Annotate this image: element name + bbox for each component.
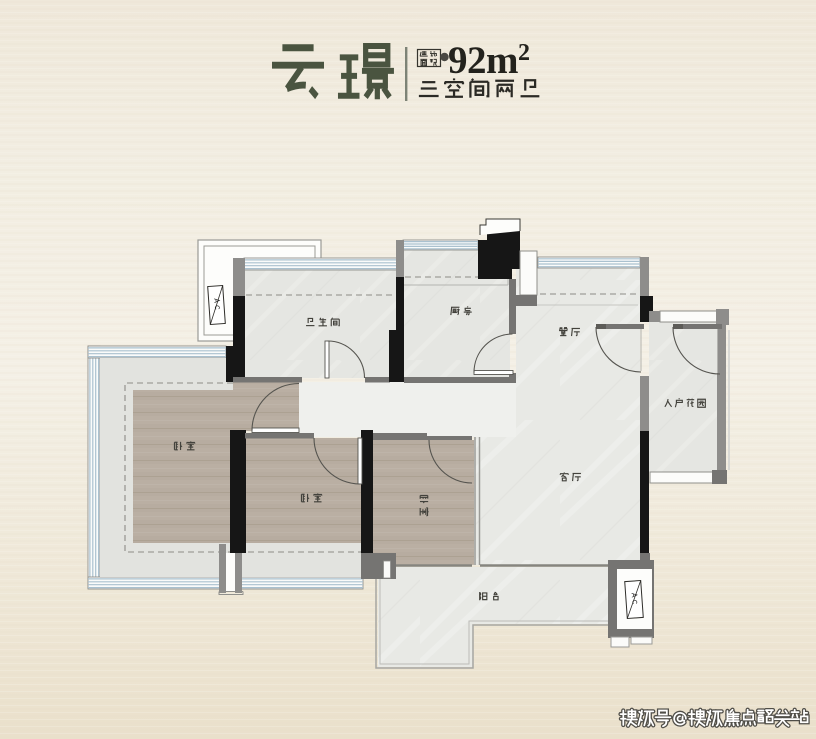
svg-text:92m2: 92m2 [448,39,530,82]
